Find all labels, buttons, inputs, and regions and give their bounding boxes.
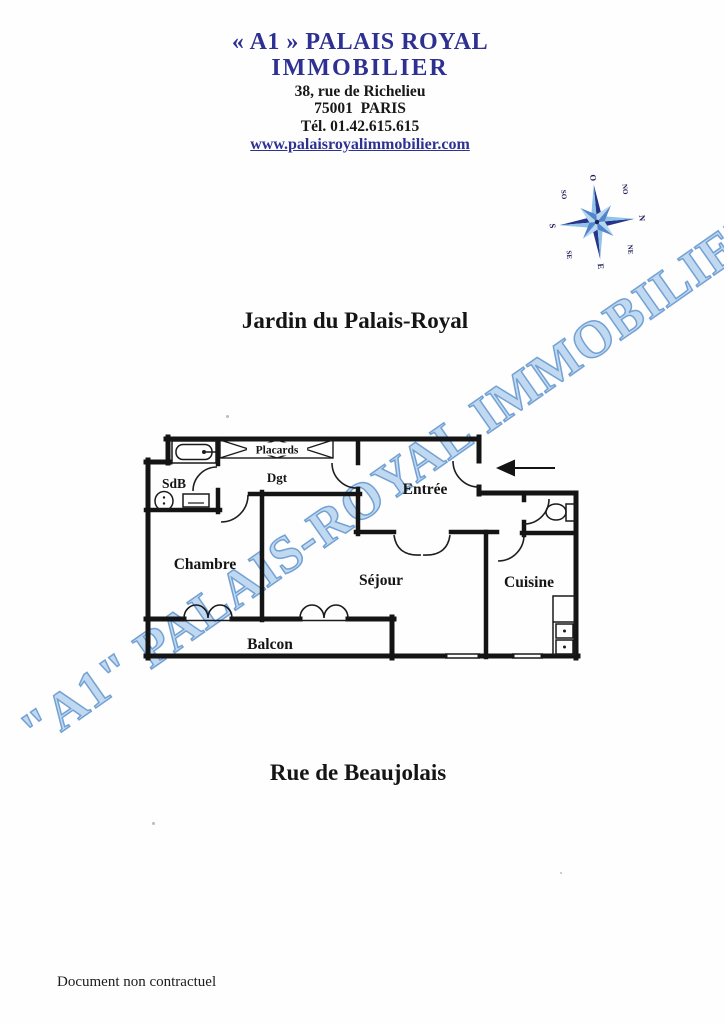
compass-label-ne: NE (626, 244, 635, 255)
compass-label-o: O (588, 174, 599, 182)
room-label-balcon: Balcon (247, 636, 293, 653)
room-label-chambre: Chambre (174, 556, 237, 573)
floor-plan: SdB Placards Dgt Entrée Chambre Séjour C… (140, 420, 590, 670)
compass-label-n: N (637, 215, 648, 223)
agency-website-link: www.palaisroyalimmobilier.com (150, 135, 570, 154)
letterhead: « A1 » PALAIS ROYAL IMMOBILIER 38, rue d… (150, 30, 570, 154)
scan-speck (226, 415, 229, 418)
room-label-cuisine: Cuisine (504, 574, 554, 591)
street-label-bottom: Rue de Beaujolais (270, 760, 446, 786)
window-symbols (184, 621, 543, 659)
compass-label-so: SO (559, 189, 568, 200)
toilet-icon (155, 492, 173, 511)
agency-city: 75001 PARIS (150, 100, 570, 117)
street-label-top: Jardin du Palais-Royal (242, 308, 468, 334)
kitchen-counter-icon (553, 596, 575, 655)
scan-speck (152, 822, 155, 825)
compass-rose: N NE E SE S SO O NO (545, 168, 649, 276)
agency-name-line1: « A1 » PALAIS ROYAL (150, 30, 570, 55)
french-window-icon (184, 605, 348, 618)
compass-label-s: S (548, 223, 558, 229)
room-label-dgt: Dgt (267, 470, 288, 485)
room-label-sejour: Séjour (359, 572, 403, 589)
compass-label-no: NO (620, 184, 629, 196)
agency-street-address: 38, rue de Richelieu (150, 83, 570, 100)
agency-name-line2: IMMOBILIER (150, 55, 570, 83)
room-label-entree: Entrée (403, 481, 448, 498)
entrance-arrow-icon (496, 460, 555, 477)
sink-icon (183, 494, 209, 507)
agency-phone: Tél. 01.42.615.615 (150, 118, 570, 135)
compass-label-e: E (596, 263, 606, 270)
disclaimer-text: Document non contractuel (57, 974, 216, 991)
door-arcs (193, 461, 549, 561)
scan-speck (560, 872, 562, 874)
wc-toilet-icon (546, 504, 576, 521)
room-label-sdb: SdB (162, 476, 186, 491)
room-label-placards: Placards (256, 445, 299, 457)
bathtub-icon (172, 441, 217, 463)
compass-label-se: SE (565, 250, 574, 260)
